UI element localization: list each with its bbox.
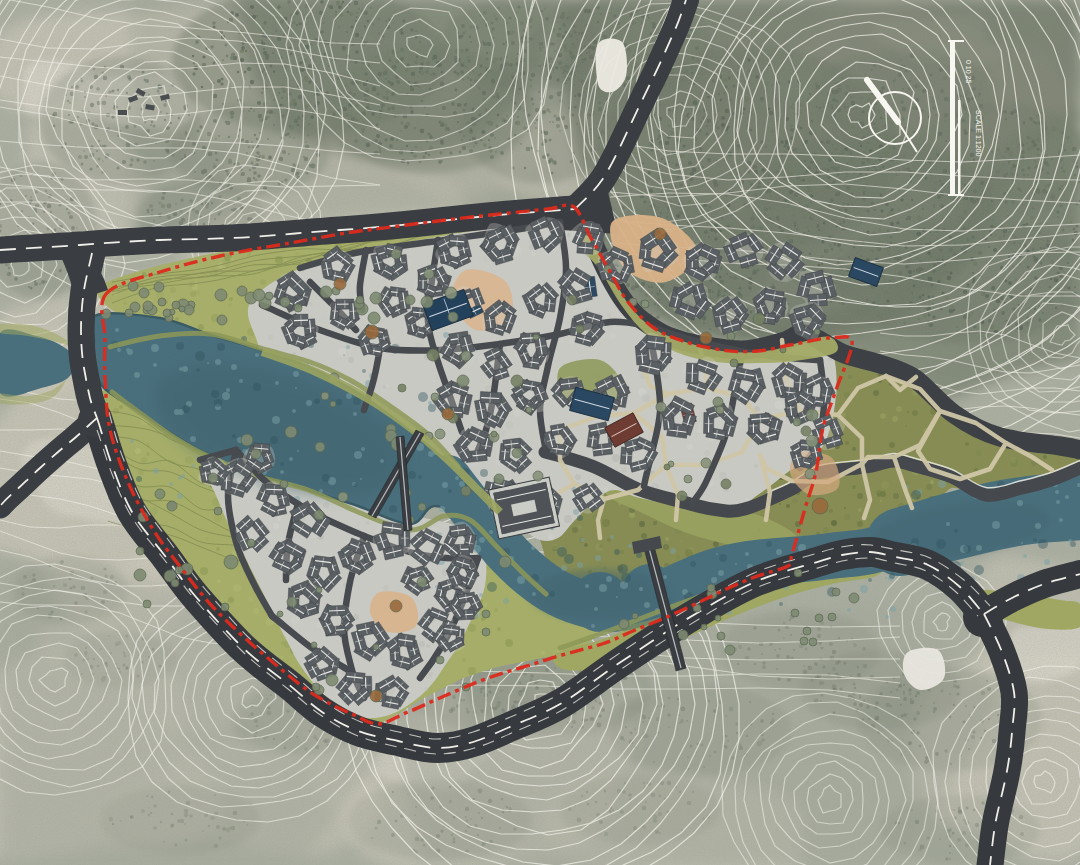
svg-text:0 10 25: 0 10 25	[965, 60, 972, 83]
svg-text:SCALE 1:1200: SCALE 1:1200	[975, 110, 982, 156]
